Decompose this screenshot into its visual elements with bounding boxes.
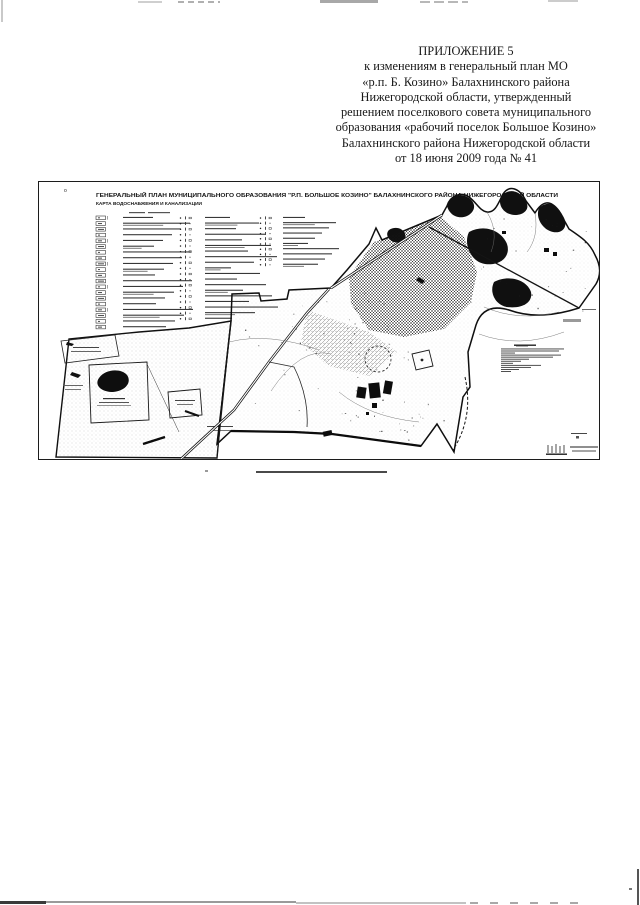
legend-row [180, 317, 232, 320]
legend-row [260, 232, 322, 235]
legend-column [260, 216, 339, 266]
scan-artifact [420, 1, 468, 3]
notes-line [501, 367, 531, 368]
map-title: ГЕНЕРАЛЬНЫЙ ПЛАН МУНИЦИПАЛЬНОГО ОБРАЗОВА… [96, 191, 558, 199]
legend-row [180, 222, 259, 226]
legend-row [180, 244, 271, 248]
scan-artifact [0, 901, 46, 904]
southwest-territory [56, 321, 233, 458]
legend-row [96, 302, 156, 306]
header-line: решением поселкового совета муниципально… [320, 105, 612, 120]
notes-line [501, 369, 519, 370]
scan-artifact [296, 902, 466, 904]
legend-row [96, 285, 183, 289]
scan-artifact [205, 470, 208, 472]
legend-row [96, 279, 192, 283]
legend-row [180, 256, 277, 259]
notes-line [501, 361, 521, 362]
legend-row [260, 263, 318, 267]
legend-row [96, 222, 190, 226]
scan-artifact [256, 471, 387, 473]
scan-artifact [1, 0, 3, 22]
header-line: образования «рабочий поселок Большое Коз… [320, 120, 612, 135]
legend-heading [129, 212, 170, 213]
scan-artifact [178, 1, 220, 3]
legend-row [96, 239, 163, 243]
header-line: к изменениям в генеральный план МО [320, 59, 612, 74]
scanned-document-page: ПРИЛОЖЕНИЕ 5 к изменениям в генеральный … [0, 0, 640, 905]
legend-row [96, 245, 154, 249]
scan-artifact [637, 869, 639, 905]
notes-line [501, 371, 511, 372]
legend-row [260, 237, 315, 240]
legend-row [96, 268, 164, 272]
legend-row [260, 248, 339, 251]
notes-line [501, 351, 559, 352]
legend-row [180, 233, 265, 236]
map-sheet: о ГЕНЕРАЛЬНЫЙ ПЛАН МУНИЦИПАЛЬНОГО ОБРАЗО… [38, 181, 600, 460]
notes-block [501, 345, 564, 372]
corner-mark: о [64, 188, 67, 194]
map-subtitle: КАРТА ВОДОСНАБЖЕНИЯ И КАНАЛИЗАЦИИ [96, 201, 202, 206]
legend-row [180, 289, 243, 293]
legend-row [96, 228, 181, 232]
legend-row [260, 253, 332, 256]
legend-row [180, 272, 260, 275]
legend-row [260, 258, 325, 261]
legend-row [180, 239, 242, 242]
legend-row [180, 261, 254, 264]
legend-row [96, 262, 173, 266]
legend-row [96, 320, 175, 324]
legend-row [260, 222, 336, 226]
scan-artifact [138, 1, 162, 3]
notes-line [501, 363, 513, 364]
notes-line [501, 353, 515, 354]
legend-row [96, 256, 182, 260]
general-plan-map: о ГЕНЕРАЛЬНЫЙ ПЛАН МУНИЦИПАЛЬНОГО ОБРАЗО… [39, 182, 599, 459]
notes-line [501, 355, 561, 356]
legend-row [96, 297, 165, 301]
appendix-number: ПРИЛОЖЕНИЕ 5 [320, 44, 612, 59]
legend-row [96, 274, 155, 278]
legend-row [96, 291, 174, 295]
scan-artifact [470, 902, 590, 904]
header-line: «р.п. Б. Козино» Балахнинского района [320, 75, 612, 90]
legend-row [180, 267, 231, 271]
legend-row [96, 233, 172, 237]
legend-row [180, 228, 236, 231]
legend-column [96, 216, 193, 329]
notes-line [501, 359, 529, 360]
header-line: Нижегородской области, утвержденный [320, 90, 612, 105]
scan-artifact [629, 888, 632, 890]
legend-row [260, 227, 329, 230]
scan-artifact [320, 0, 378, 3]
header-line: Балахнинского района Нижегородской облас… [320, 136, 612, 151]
legend-row [96, 251, 191, 255]
notes-line [501, 349, 564, 350]
scan-artifact [46, 901, 296, 903]
scale-stamp [546, 433, 598, 455]
notes-line [501, 365, 541, 366]
legend-row [260, 216, 305, 219]
legend-row [96, 308, 193, 312]
scan-artifact [548, 0, 578, 2]
legend-row [180, 284, 266, 287]
legend-row [180, 216, 230, 219]
header-line: от 18 июня 2009 года № 41 [320, 151, 612, 166]
legend-row [96, 325, 166, 329]
notes-line [501, 357, 553, 358]
appendix-header: ПРИЛОЖЕНИЕ 5 к изменениям в генеральный … [320, 44, 612, 166]
legend-row [96, 314, 184, 318]
legend-row [96, 216, 153, 220]
settlement-territory [181, 189, 599, 459]
